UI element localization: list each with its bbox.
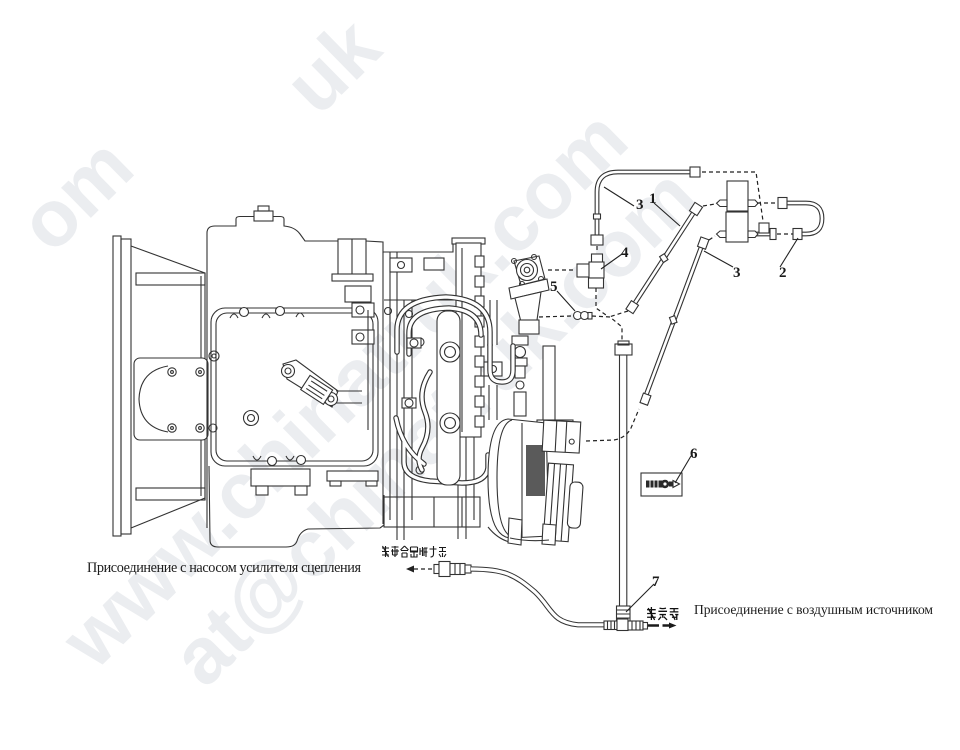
- svg-text:3: 3: [636, 197, 644, 213]
- svg-text:6: 6: [690, 446, 698, 462]
- svg-text:4: 4: [621, 245, 629, 261]
- svg-text:2: 2: [779, 265, 787, 281]
- svg-text:3: 3: [733, 265, 741, 281]
- svg-text:1: 1: [649, 191, 657, 207]
- svg-text:5: 5: [550, 279, 558, 295]
- svg-text:7: 7: [652, 574, 660, 590]
- svg-text:uk: uk: [268, 1, 397, 130]
- svg-text:Присоединение с воздушным исто: Присоединение с воздушным источником: [694, 602, 933, 617]
- svg-text:Присоединение с насосом усилит: Присоединение с насосом усилителя сцепле…: [87, 560, 361, 576]
- svg-text:om: om: [2, 121, 150, 269]
